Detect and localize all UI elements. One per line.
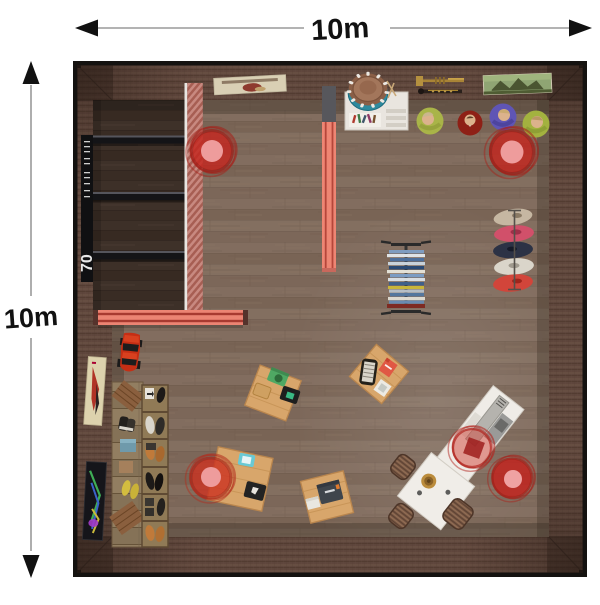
svg-text:10m: 10m	[3, 301, 59, 335]
svg-text:10m: 10m	[310, 12, 370, 47]
